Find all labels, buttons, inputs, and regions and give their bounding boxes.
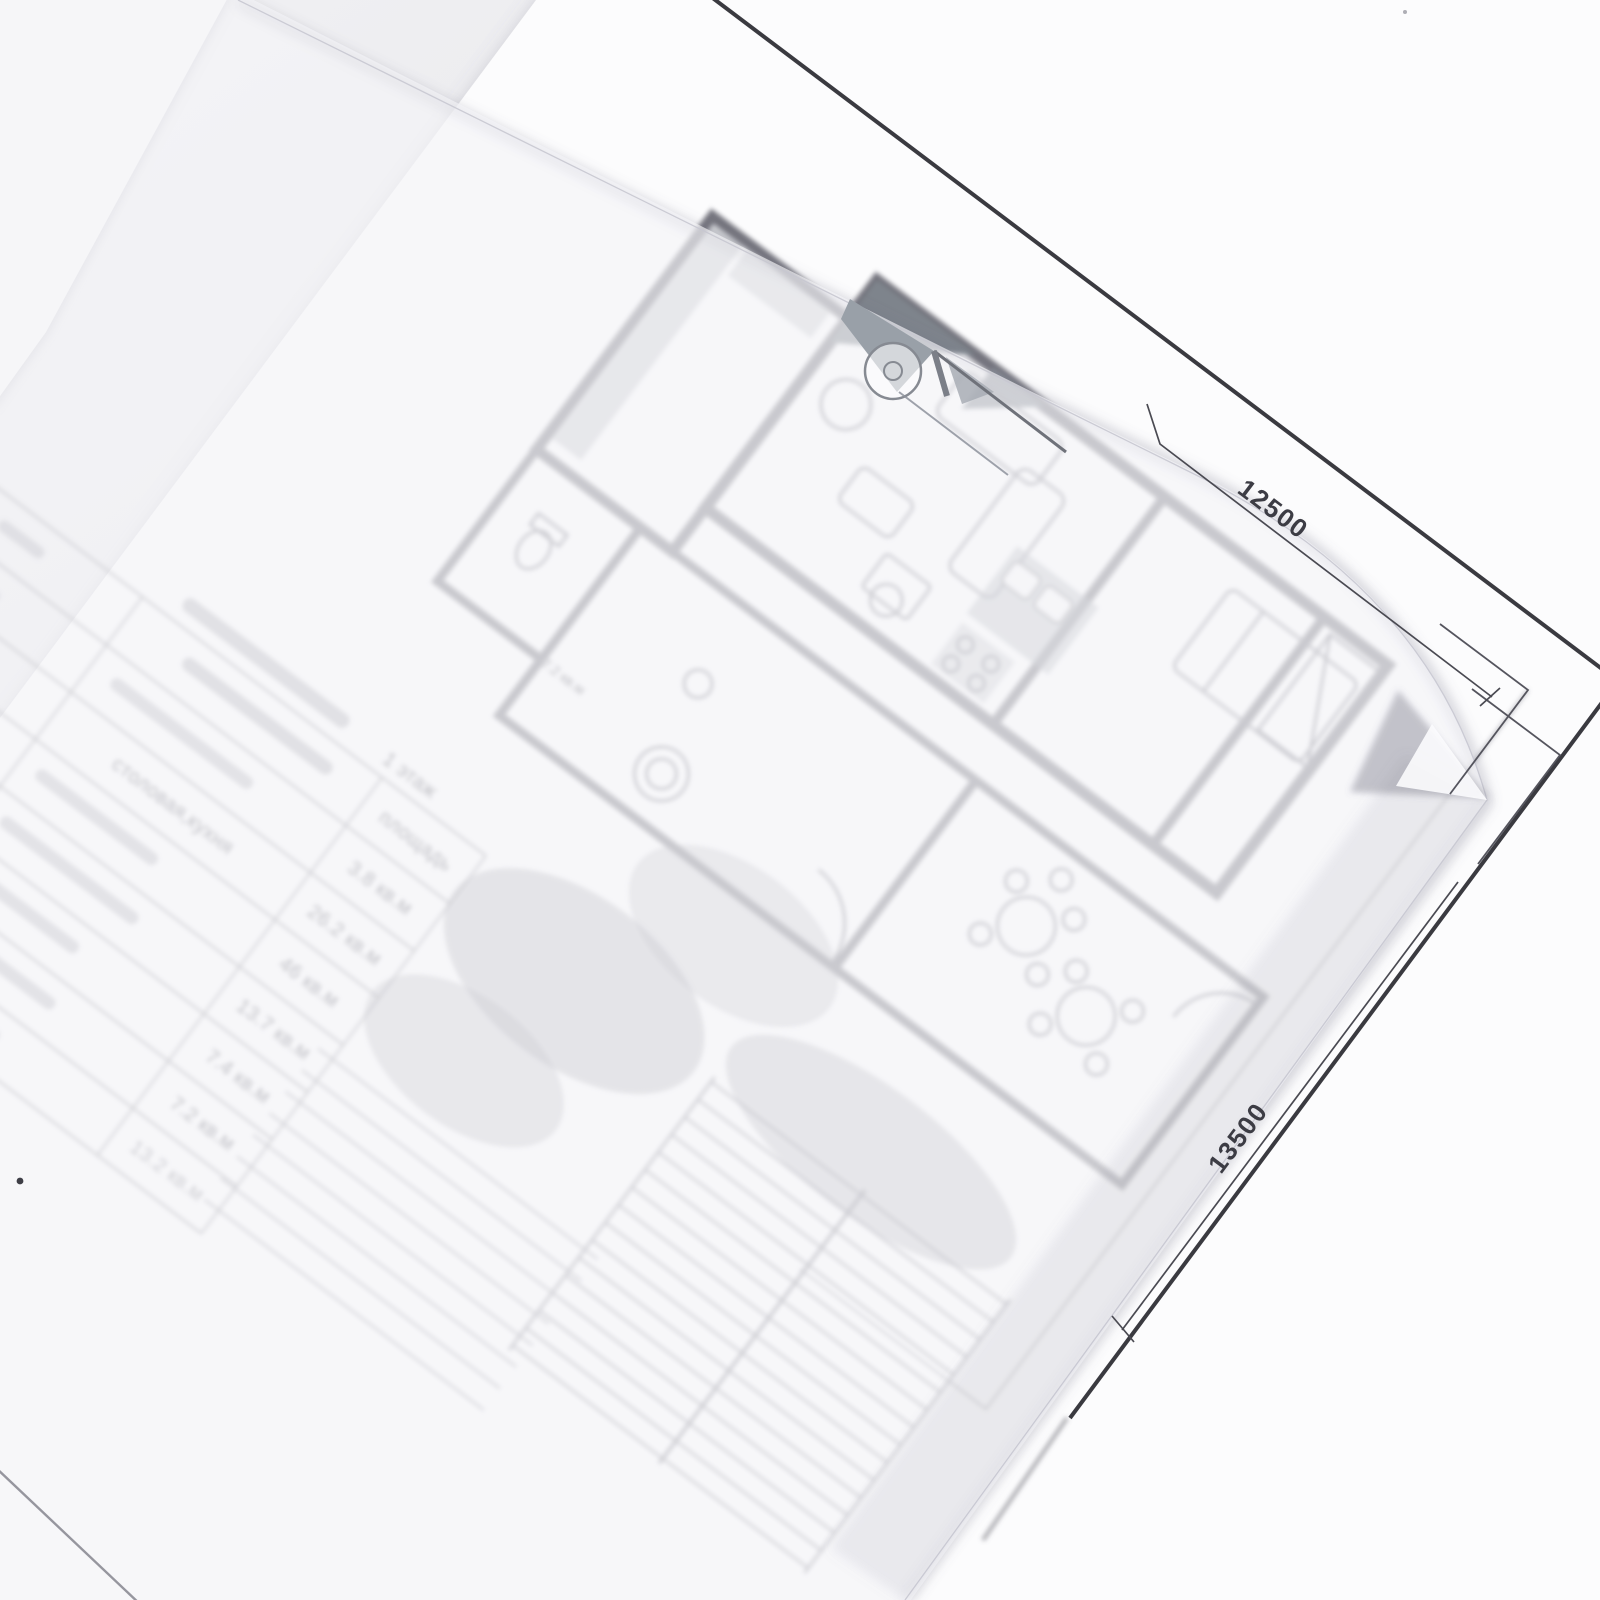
ink-speck	[17, 1178, 24, 1185]
photo-floor-plan-sheets: 1 этаж площадь 3.8 кв.м столовая,кухня 2…	[0, 0, 1600, 1600]
ceiling-fan-symbol	[865, 343, 921, 399]
scene-canvas: 1 этаж площадь 3.8 кв.м столовая,кухня 2…	[0, 0, 1600, 1600]
dust-speck	[1403, 10, 1407, 14]
